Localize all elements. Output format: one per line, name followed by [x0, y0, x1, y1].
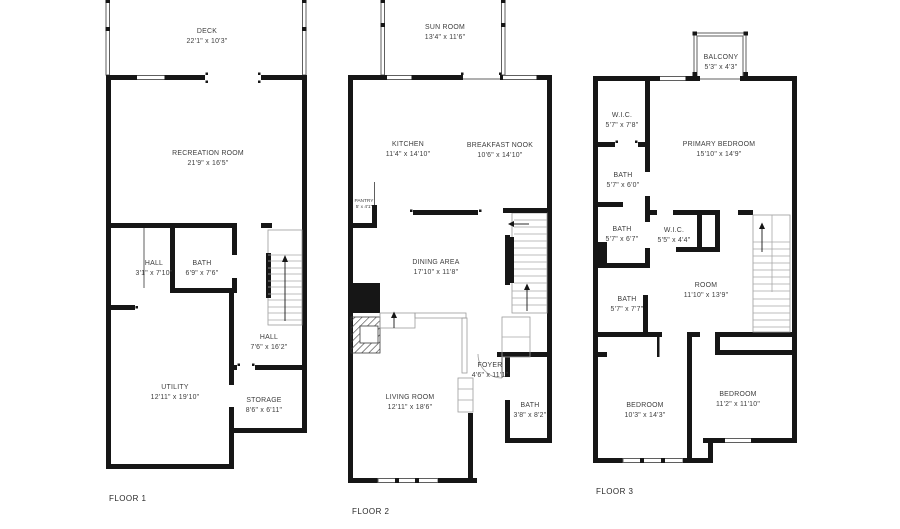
room-name: BEDROOM — [624, 401, 665, 411]
floor1-caption: FLOOR 1 — [109, 494, 146, 503]
room-name: RECREATION ROOM — [172, 149, 244, 159]
room-name: HALL — [136, 259, 173, 269]
floorplan-canvas: DECK 22'1" x 10'3" RECREATION ROOM 21'9"… — [0, 0, 900, 529]
room-label-bath-f2: BATH 3'8" x 8'2" — [514, 401, 547, 422]
room-name: LIVING ROOM — [386, 393, 435, 403]
room-label-balcony: BALCONY 5'3" x 4'3" — [704, 53, 739, 74]
floor3-caption: FLOOR 3 — [596, 487, 633, 496]
room-name: BATH — [606, 225, 639, 235]
room-dims: 5'7" x 7'8" — [606, 121, 639, 131]
room-dims: 5' x 4'1" — [354, 205, 373, 211]
room-dims: 8'6" x 6'11" — [246, 406, 282, 416]
room-label-pantry: PANTRY 5' x 4'1" — [354, 199, 373, 211]
room-label-storage: STORAGE 8'6" x 6'11" — [246, 396, 282, 417]
room-dims: 21'9" x 16'5" — [172, 159, 244, 169]
room-label-wic-2: W.I.C. 5'5" x 4'4" — [658, 226, 691, 247]
room-label-hall-1: HALL 3'1" x 7'10" — [136, 259, 173, 280]
room-dims: 5'7" x 6'0" — [607, 181, 640, 191]
room-label-bath-b: BATH 5'7" x 6'7" — [606, 225, 639, 246]
room-label-hall-2: HALL 7'6" x 16'2" — [251, 333, 288, 354]
staircase-icon-floor3 — [753, 215, 790, 332]
room-dims: 6'9" x 7'6" — [186, 269, 219, 279]
room-dims: 3'1" x 7'10" — [136, 269, 173, 279]
room-dims: 11'2" x 11'10" — [716, 400, 760, 410]
room-name: BATH — [607, 171, 640, 181]
room-dims: 3'8" x 8'2" — [514, 411, 547, 421]
room-label-deck: DECK 22'1" x 10'3" — [186, 27, 227, 48]
room-dims: 4'6" x 11'1" — [472, 371, 508, 381]
railing-divider — [380, 312, 467, 374]
room-name: BREAKFAST NOOK — [467, 141, 533, 151]
room-label-living-room: LIVING ROOM 12'11" x 18'6" — [386, 393, 435, 414]
room-label-bedroom-1: BEDROOM 10'3" x 14'3" — [624, 401, 665, 422]
room-name: BATH — [186, 259, 219, 269]
room-label-sun-room: SUN ROOM 13'4" x 11'6" — [425, 23, 466, 44]
room-label-wic-1: W.I.C. 5'7" x 7'8" — [606, 111, 639, 132]
room-label-utility: UTILITY 12'11" x 19'10" — [151, 383, 200, 404]
floor2-caption: FLOOR 2 — [352, 507, 389, 516]
room-name: W.I.C. — [606, 111, 639, 121]
room-label-recreation-room: RECREATION ROOM 21'9" x 16'5" — [172, 149, 244, 170]
room-dims: 11'10" x 13'9" — [684, 291, 729, 301]
room-name: BATH — [514, 401, 547, 411]
room-name: STORAGE — [246, 396, 282, 406]
room-name: HALL — [251, 333, 288, 343]
room-dims: 12'11" x 19'10" — [151, 393, 200, 403]
room-label-dining-area: DINING AREA 17'10" x 11'8" — [412, 258, 459, 279]
room-dims: 5'3" x 4'3" — [704, 63, 739, 73]
room-dims: 15'10" x 14'9" — [683, 150, 755, 160]
room-label-room: ROOM 11'10" x 13'9" — [684, 281, 729, 302]
room-dims: 5'7" x 6'7" — [606, 235, 639, 245]
room-dims: 10'3" x 14'3" — [624, 411, 665, 421]
room-label-bath-f1: BATH 6'9" x 7'6" — [186, 259, 219, 280]
room-label-breakfast-nook: BREAKFAST NOOK 10'6" x 14'10" — [467, 141, 533, 162]
room-dims: 13'4" x 11'6" — [425, 33, 466, 43]
room-name: FOYER — [472, 361, 508, 371]
room-label-bath-c: BATH 5'7" x 7'7" — [611, 295, 644, 316]
room-label-bedroom-2: BEDROOM 11'2" x 11'10" — [716, 390, 760, 411]
room-name: SUN ROOM — [425, 23, 466, 33]
room-name: DINING AREA — [412, 258, 459, 268]
room-name: UTILITY — [151, 383, 200, 393]
room-dims: 5'7" x 7'7" — [611, 305, 644, 315]
room-dims: 17'10" x 11'8" — [412, 268, 459, 278]
room-dims: 10'6" x 14'10" — [467, 151, 533, 161]
room-label-kitchen: KITCHEN 11'4" x 14'10" — [386, 140, 431, 161]
room-name: W.I.C. — [658, 226, 691, 236]
room-dims: 7'6" x 16'2" — [251, 343, 288, 353]
room-dims: 22'1" x 10'3" — [186, 37, 227, 47]
room-dims: 12'11" x 18'6" — [386, 403, 435, 413]
room-name: DECK — [186, 27, 227, 37]
staircase-icon-floor1 — [266, 230, 302, 325]
room-dims: 11'4" x 14'10" — [386, 150, 431, 160]
floor3-plan — [593, 32, 797, 464]
fireplace-icon — [351, 283, 380, 353]
room-name: PRIMARY BEDROOM — [683, 140, 755, 150]
room-label-bath-a: BATH 5'7" x 6'0" — [607, 171, 640, 192]
room-name: BALCONY — [704, 53, 739, 63]
room-label-foyer: FOYER 4'6" x 11'1" — [472, 361, 508, 382]
closet-shelves-icon — [458, 378, 473, 412]
room-name: BATH — [611, 295, 644, 305]
room-name: BEDROOM — [716, 390, 760, 400]
room-dims: 5'5" x 4'4" — [658, 236, 691, 246]
room-label-primary-bedroom: PRIMARY BEDROOM 15'10" x 14'9" — [683, 140, 755, 161]
room-name: ROOM — [684, 281, 729, 291]
room-name: KITCHEN — [386, 140, 431, 150]
